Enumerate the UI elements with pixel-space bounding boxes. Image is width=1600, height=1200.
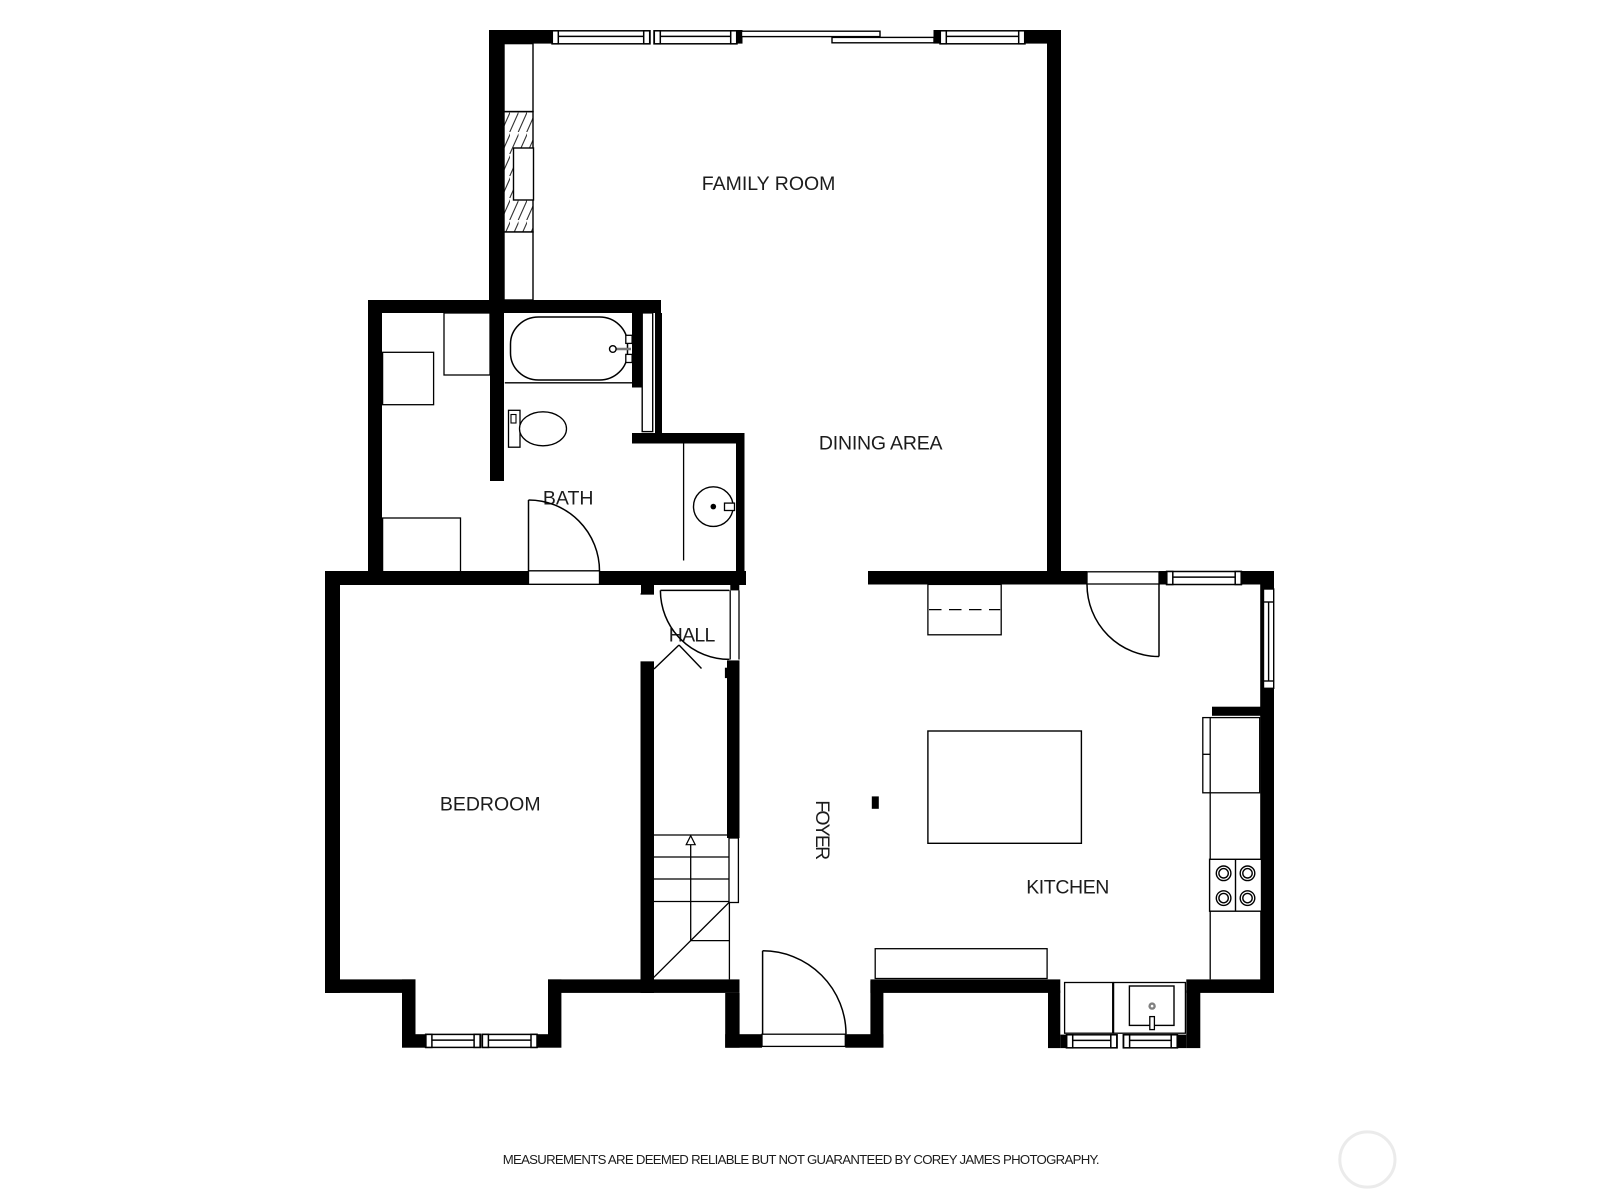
- svg-text:FOYER: FOYER: [811, 800, 833, 860]
- svg-text:KITCHEN: KITCHEN: [1026, 877, 1109, 899]
- svg-text:DINING AREA: DINING AREA: [819, 432, 943, 454]
- svg-text:BATH: BATH: [543, 487, 594, 509]
- svg-text:FAMILY ROOM: FAMILY ROOM: [702, 173, 836, 195]
- svg-text:BEDROOM: BEDROOM: [440, 794, 541, 816]
- svg-text:MEASUREMENTS ARE DEEMED RELIAB: MEASUREMENTS ARE DEEMED RELIABLE BUT NOT…: [503, 1152, 1099, 1167]
- svg-text:HALL: HALL: [669, 625, 716, 647]
